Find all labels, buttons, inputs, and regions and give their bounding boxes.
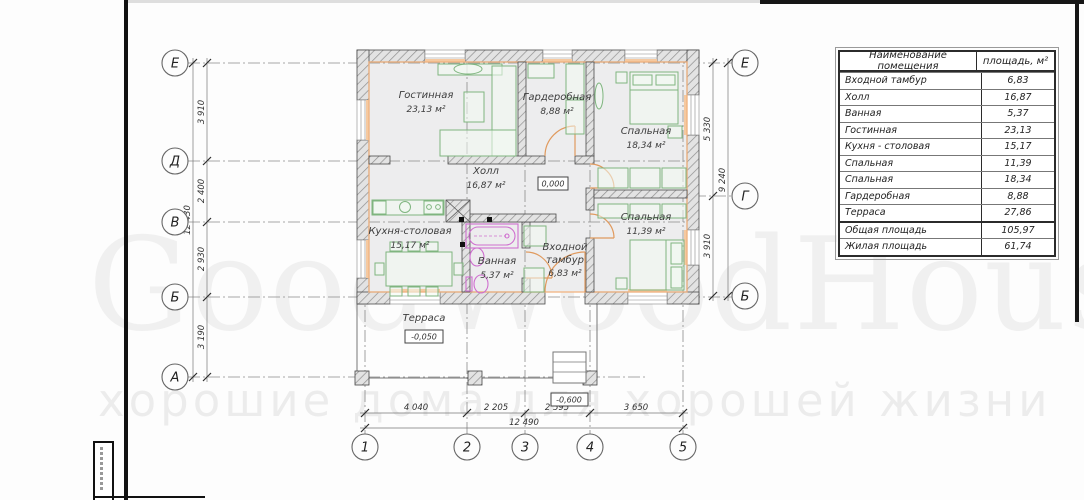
room-area: 18,34 м² [626,141,665,152]
table-cell-area: 61,74 [982,241,1054,252]
level-mark-zero: 0,000 [542,180,565,189]
table-cell-name: Кухня - столовая [840,139,982,155]
table-cell-area: 18,34 [982,174,1054,185]
table-cell-name: Спальная [840,172,982,188]
window [543,50,572,62]
plant-icon [595,83,603,109]
table-cell-area: 27,86 [982,207,1054,218]
table-cell-area: 11,39 [982,158,1054,169]
table-header-area: площадь, м² [977,56,1054,67]
dim-label: 3 910 [197,100,207,124]
axis-letter: Б [741,290,750,305]
table-row: Входной тамбур6,83 [840,72,1054,89]
dim-label: 3 910 [703,234,713,258]
room-area: 5,37 м² [480,271,513,282]
table-cell-name: Гостинная [840,123,982,139]
axis-number: 4 [586,441,594,456]
table-cell-name: Гардеробная [840,189,982,205]
table-row: Гостинная23,13 [840,122,1054,139]
table-cell-name: Холл [840,90,982,106]
dim-label: 2 400 [197,179,207,203]
dim-label: 2 930 [197,247,207,271]
stamp-vertical-text [100,447,103,491]
room-label-kitchen: Кухня-столовая 15,17 м² [364,226,456,252]
kitchen-sink [400,202,411,213]
dim-label-total: 9 240 [718,168,728,192]
terrace-outline [355,304,597,385]
table-header-row: Наименование помещения площадь, м² [840,52,1054,72]
room-name: Ванная [478,256,516,269]
axis-letter: Е [171,57,180,72]
table-cell-area: 105,97 [982,225,1054,236]
margin-stamp-box [93,441,114,500]
room-area: 15,17 м² [390,241,429,252]
room-label-bathroom: Ванная 5,37 м² [468,256,526,282]
dim-label: 3 190 [197,325,207,349]
table-row: Ванная5,37 [840,105,1054,122]
axis-number: 5 [679,441,687,456]
terrace-post [355,371,369,385]
room-label-terrace: Терраса [396,313,452,326]
window [425,50,465,62]
room-label-vestibule: Входной тамбур 6,83 м² [536,242,594,280]
table-row: Кухня - столовая15,17 [840,138,1054,155]
table-cell-name: Ванная [840,106,982,122]
sheet-top-edge-dark [760,0,1084,4]
room-area: 23,13 м² [406,105,445,116]
dim-label: 5 330 [703,117,713,141]
room-name: Спальная [621,126,672,139]
table-cell-name: Жилая площадь [840,239,982,255]
porch-steps [553,352,586,383]
room-label-bedroom2: Спальная 11,39 м² [608,212,684,238]
dim-label: 3 650 [624,403,648,413]
table-row-total: Общая площадь105,97 [840,221,1054,239]
window [628,289,667,304]
table-cell-name: Терраса [840,205,982,221]
room-area: 11,39 м² [626,227,665,238]
room-label-wardrobe: Гардеробная 8,88 м² [524,92,590,118]
room-name: Гардеробная [523,92,591,105]
sheet-top-edge-light [128,0,760,3]
window [625,50,657,62]
axis-letter: Д [169,155,180,170]
table-cell-name: Спальная [840,156,982,172]
plant-icon [454,64,482,74]
table-cell-area: 23,13 [982,125,1054,136]
terrace-post [468,371,482,385]
window [357,100,369,140]
room-name: Кухня-столовая [368,226,451,239]
dim-label-total: 12 490 [509,418,539,428]
window [684,230,699,265]
table-cell-name: Входной тамбур [840,73,982,89]
level-mark-terrace: -0,050 [411,333,437,342]
dim-label: 2 205 [484,403,508,413]
table-cell-name: Общая площадь [840,223,982,239]
table-cell-area: 16,87 [982,92,1054,103]
table-row: Гардеробная8,88 [840,188,1054,205]
table-row: Спальная11,39 [840,155,1054,172]
sheet-right-border [1075,0,1079,322]
room-label-hall: Холл 16,87 м² [450,166,522,192]
axis-number: 1 [361,441,369,456]
room-area: 16,87 м² [466,181,505,192]
sheet-left-border [124,0,128,500]
axis-letter: Е [741,57,750,72]
dining-table [386,252,452,286]
scanned-floor-plan-sheet: GoodWoodHouse™ хорошие дома для хорошей … [0,0,1084,500]
room-name: Входной тамбур [536,242,594,267]
table-row: Терраса27,86 [840,204,1054,221]
room-area: 8,88 м² [540,107,573,118]
room-name: Терраса [403,313,446,326]
axis-letter: Б [171,291,180,306]
table-cell-area: 5,37 [982,108,1054,119]
room-name: Спальная [621,212,672,225]
table-row: Спальная18,34 [840,171,1054,188]
axis-number: 3 [521,441,529,456]
table-cell-area: 8,88 [982,191,1054,202]
dim-label: 4 040 [404,403,428,413]
axis-letter: А [170,371,180,386]
table-header-name: Наименование помещения [840,52,977,70]
table-cell-area: 15,17 [982,141,1054,152]
table-row-total: Жилая площадь61,74 [840,238,1054,255]
room-name: Холл [473,166,499,179]
room-name: Гостинная [399,90,454,103]
level-mark-porch: -0,600 [556,396,582,405]
sheet-bottom-border [93,496,205,498]
table-row: Холл16,87 [840,89,1054,106]
room-label-living: Гостинная 23,13 м² [370,90,482,116]
room-area-table: Наименование помещения площадь, м² Входн… [838,50,1056,257]
table-cell-area: 6,83 [982,75,1054,86]
room-label-bedroom1: Спальная 18,34 м² [604,126,688,152]
room-area: 6,83 м² [548,269,581,280]
axis-letter: В [171,216,180,231]
axis-number: 2 [463,441,471,456]
